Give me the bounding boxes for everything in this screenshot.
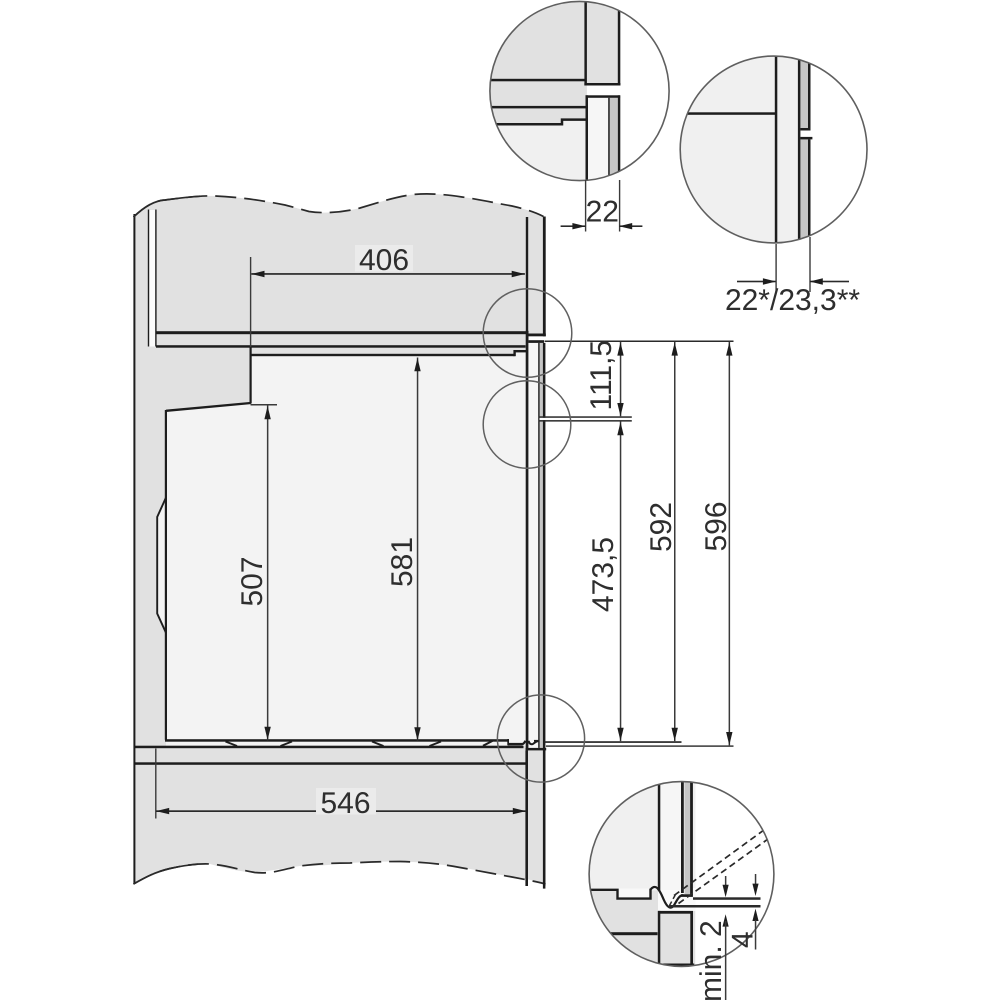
svg-text:581: 581 xyxy=(386,537,419,587)
svg-text:507: 507 xyxy=(236,556,269,606)
svg-text:592: 592 xyxy=(645,502,678,552)
svg-text:22: 22 xyxy=(586,196,619,229)
svg-text:22*/23,3**: 22*/23,3** xyxy=(725,284,860,317)
svg-text:4: 4 xyxy=(727,931,760,948)
svg-text:111,5: 111,5 xyxy=(585,340,618,411)
svg-text:546: 546 xyxy=(320,787,370,820)
svg-text:473,5: 473,5 xyxy=(587,537,620,612)
svg-text:596: 596 xyxy=(700,501,733,551)
svg-text:406: 406 xyxy=(359,244,409,277)
svg-text:min. 2: min. 2 xyxy=(695,920,728,1000)
